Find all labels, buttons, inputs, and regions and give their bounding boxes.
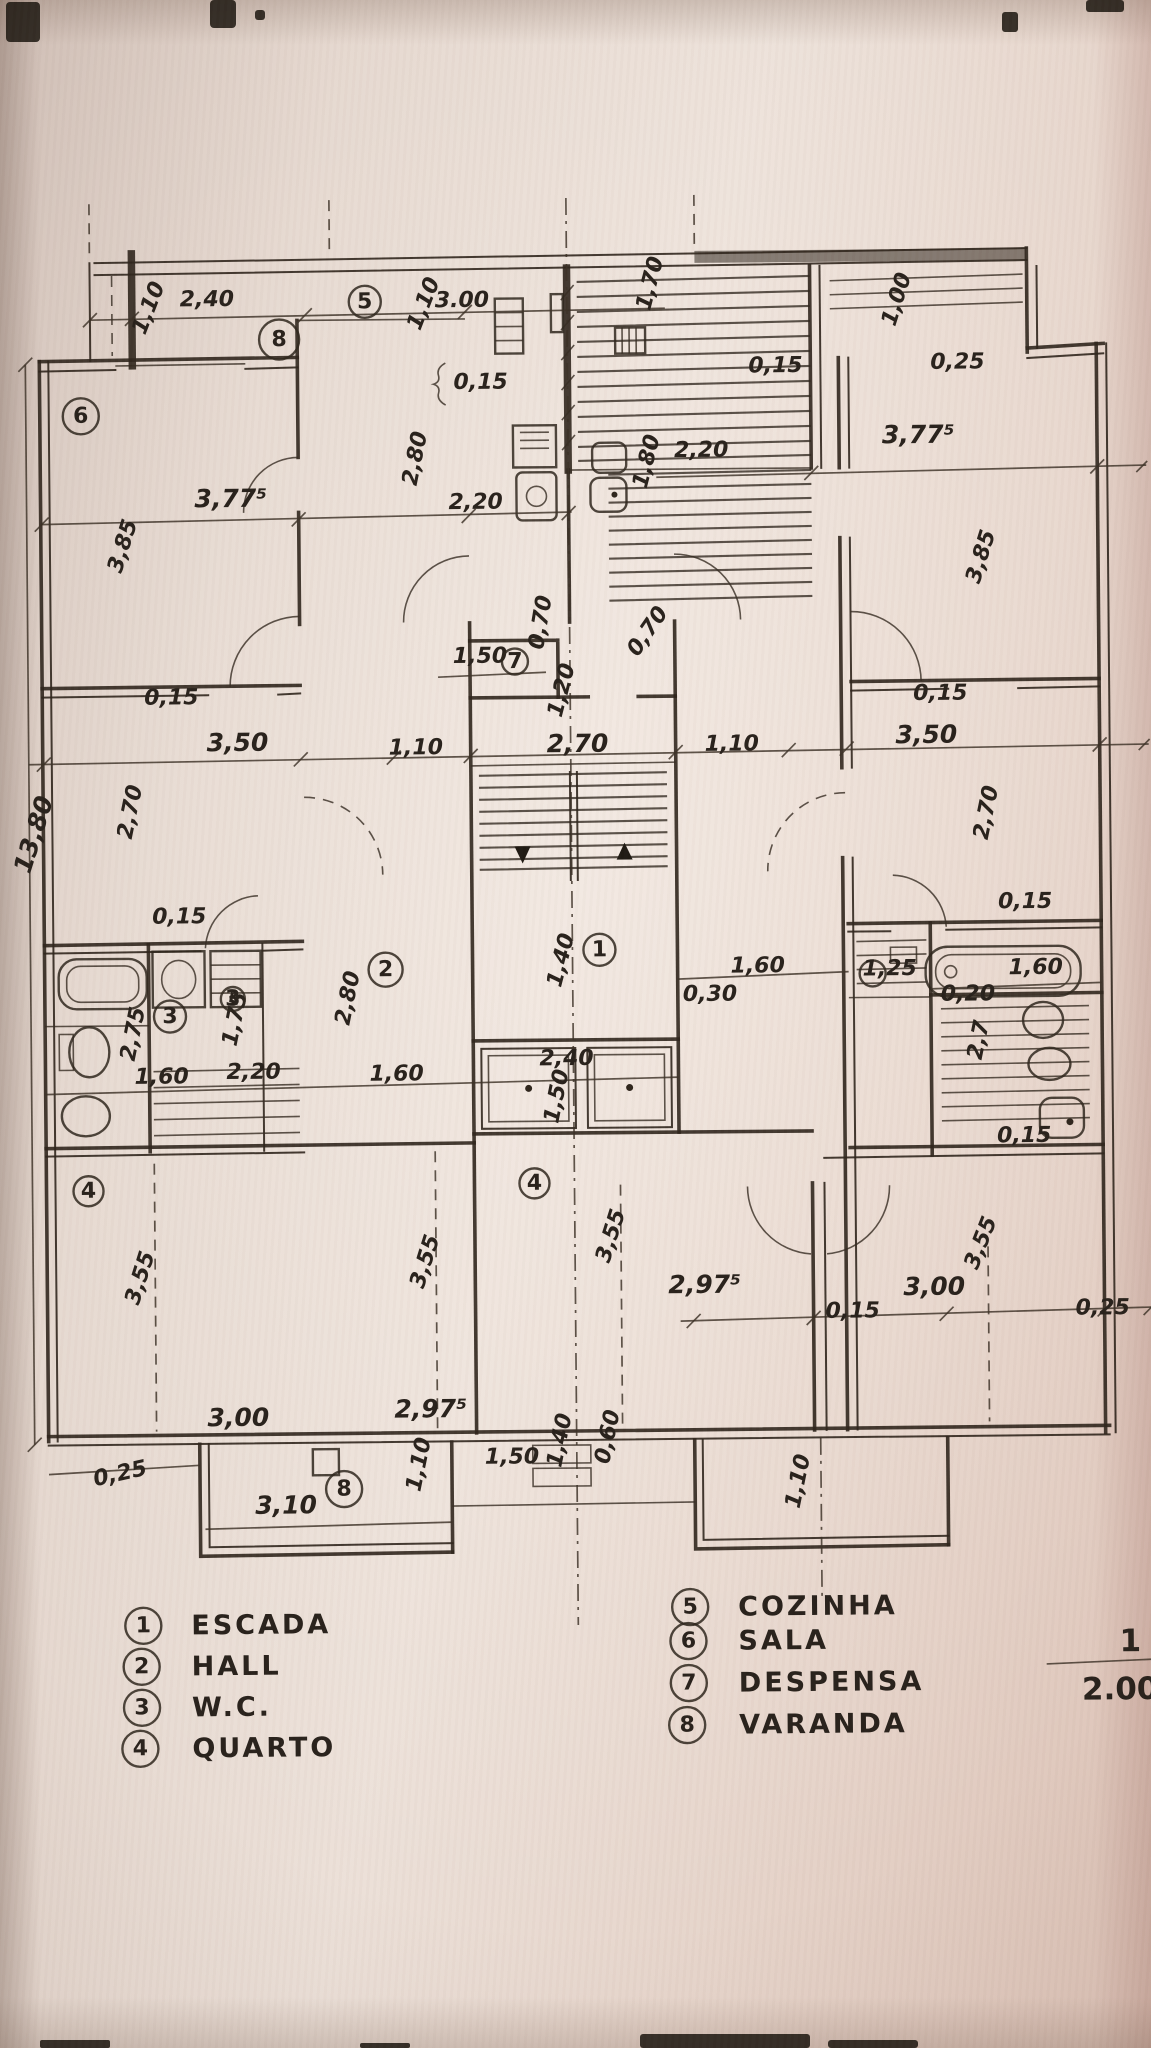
marker-number: 6 [73,404,89,429]
legend-label: VARANDA [739,1708,908,1740]
floorplan-drawing: 2,40 1,10 3.00 1,10 1,70 1,00 0,25 0,15 … [0,0,1151,2048]
legend-number: 8 [679,1712,695,1737]
dim-label: 3,77⁵ [882,420,955,450]
dim-label: 1,80 [628,432,666,491]
dim-label: 3,85 [961,527,1001,586]
legend-item-despensa: 7 DESPENSA [671,1663,925,1701]
dim-label: 1,40 [542,1411,577,1469]
walls [38,245,1116,1557]
dim-label: 3.00 [435,288,489,313]
dim-label: 1,10 [705,731,759,756]
dim-label: 3,55 [405,1232,445,1291]
legend-number: 4 [133,1736,149,1761]
dim-label: 3,55 [960,1213,1003,1273]
dim-label: 1,20 [543,661,581,720]
dim-label: 0,70 [524,594,558,652]
dim-label: 3,00 [903,1272,965,1302]
marker-number: 7 [507,649,523,674]
room-marker-escada: 1 [583,934,615,966]
legend-number: 6 [681,1628,697,1653]
dim-label: 2,97⁵ [668,1270,741,1300]
dim-label: 2,20 [674,438,728,463]
dim-label: 1,60 [369,1061,423,1086]
dim-label: 0,70 [622,602,673,661]
floorplan-photo: 2,40 1,10 3.00 1,10 1,70 1,00 0,25 0,15 … [0,0,1151,2048]
scale-numerator: 1 [1119,1623,1141,1659]
marker-number: 4 [527,1171,543,1196]
legend-label: COZINHA [738,1590,898,1622]
legend-item-varanda: 8 VARANDA [669,1705,908,1743]
legend-item-escada: 1 ESCADA [125,1606,331,1644]
legend-item-quarto: 4 QUARTO [122,1729,336,1767]
dim-label: 0,25 [930,349,984,374]
dim-label: 3,10 [255,1490,317,1520]
dim-label: 0,15 [998,889,1052,914]
dim-label: 2,97⁵ [394,1394,467,1424]
dim-label: 3,00 [207,1403,269,1433]
scale-fraction: 1 2.000 [1046,1623,1151,1708]
dim-label: 3,77⁵ [194,484,267,514]
dim-label: 0,15 [913,681,967,706]
dim-label: 2,70 [113,783,148,841]
dim-label: 3,55 [591,1206,631,1265]
legend-number: 3 [134,1695,150,1720]
dim-label: 0,60 [590,1408,625,1466]
dim-label: 0,25 [1075,1295,1129,1320]
marker-number: 8 [336,1476,352,1501]
legend-item-sala: 6 SALA [670,1622,829,1659]
marker-number: 5 [357,289,373,314]
marker-number: 2 [378,957,394,982]
legend-number: 7 [681,1670,697,1695]
marker-number: 4 [81,1179,97,1204]
dim-label: 0,15 [748,353,802,378]
legend-label: QUARTO [192,1732,336,1764]
dim-label: 1,60 [730,953,784,978]
dim-label: 1,70 [631,254,669,313]
dim-label: 2,20 [448,490,502,515]
dim-label: 1,10 [389,735,443,760]
legend-item-cozinha: 5 COZINHA [672,1587,898,1625]
marker-number: 1 [592,937,608,962]
door-arcs [201,452,949,1259]
legend-label: ESCADA [191,1609,331,1641]
dim-label: 1,50 [453,644,507,669]
marker-number: 8 [271,327,287,352]
dim-label: 0,15 [144,685,198,710]
dim-label: 1,60 [134,1064,188,1089]
room-marker-wc-left: 3 [154,1000,186,1032]
legend-number: 2 [134,1654,150,1679]
dim-label: 0,30 [683,982,737,1007]
dim-label: 1,10 [781,1452,816,1510]
dim-label: 2,7 [963,1018,995,1062]
dim-label: 2,40 [180,287,234,312]
marker-number: 3 [225,986,241,1011]
dim-label: 0,15 [152,904,206,929]
dim-label: 2,80 [330,969,365,1027]
room-marker-varanda-bottom: 8 [326,1471,362,1507]
marker-number: 3 [162,1004,178,1029]
legend-label: HALL [192,1651,282,1683]
dim-label: 1,60 [1008,955,1062,980]
room-marker-sala: 6 [63,398,99,434]
dim-label: 1,50 [485,1444,539,1469]
legend-label: W.C. [192,1692,272,1724]
legend-item-wc: 3 W.C. [124,1689,272,1726]
dim-label: 2,20 [226,1060,280,1085]
legend-label: DESPENSA [739,1666,925,1699]
dim-label: 0,15 [997,1123,1051,1148]
dim-label: 3,85 [103,516,143,575]
dim-label: 0,15 [825,1298,879,1323]
dim-label: 0,15 [453,370,507,395]
legend-number: 5 [682,1594,698,1619]
room-marker-quarto-center: 4 [519,1168,549,1198]
room-marker-varanda-top: 8 [259,319,299,359]
dim-label: 0,25 [91,1456,149,1492]
room-marker-quarto-left: 4 [73,1176,103,1206]
legend: 1 ESCADA 2 HALL 3 W.C. 4 QUARTO 5 COZINH… [121,1585,1151,1767]
room-marker-hall: 2 [368,953,402,987]
legend-label: SALA [738,1625,829,1657]
dim-label: 2,70 [547,729,609,759]
dim-label: 0,20 [941,981,995,1006]
dim-label: 2,80 [398,429,433,487]
legend-number: 1 [136,1613,152,1638]
dim-label: 3,50 [206,728,268,758]
dim-label: 2,40 [539,1046,593,1071]
room-marker-cozinha: 5 [349,286,381,318]
legend-item-hall: 2 HALL [124,1648,282,1685]
dim-label: 2,75 [116,1005,151,1063]
dim-label: 3,50 [895,720,957,750]
dim-label: 2,70 [969,783,1004,841]
scale-denominator: 2.000 [1082,1671,1151,1708]
dim-label: 1,10 [402,1435,437,1493]
dim-label: 1,25 [863,956,917,981]
dim-label: 1,40 [542,931,580,990]
